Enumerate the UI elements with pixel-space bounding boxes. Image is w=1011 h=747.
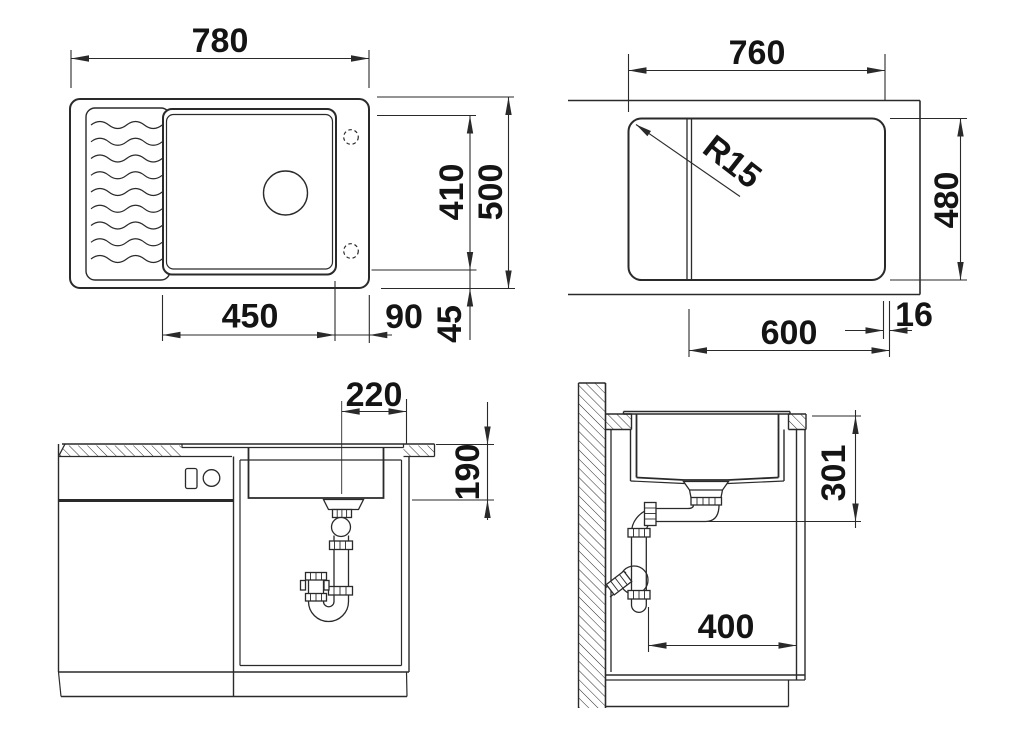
overall-depth-label: 500 xyxy=(472,164,510,221)
cutout-width-label: 760 xyxy=(729,34,786,72)
trap-bend-inner xyxy=(324,602,335,607)
bowl-offset-dimension: 600 xyxy=(689,301,890,357)
arrowhead xyxy=(649,642,667,648)
plinth-left xyxy=(59,672,62,697)
outlet-pipe-top xyxy=(656,505,694,509)
arrowhead xyxy=(629,67,647,74)
bowl-offset-label: 600 xyxy=(761,314,818,352)
cutout-depth-dimension: 480 xyxy=(890,119,967,281)
arrowhead xyxy=(484,427,490,445)
wall-hatch xyxy=(579,383,606,708)
arrowhead xyxy=(689,347,707,353)
sink-dimension-drawing: 780 500 410 45 xyxy=(0,0,1011,747)
arrowhead xyxy=(872,347,890,353)
drain-elbow xyxy=(332,518,351,537)
arrowhead xyxy=(71,55,89,62)
arrowhead xyxy=(484,500,490,518)
drain-offset-dimension: 220 xyxy=(342,376,407,444)
arrowhead xyxy=(957,119,963,137)
arrowhead xyxy=(636,125,651,137)
bowl-outer-edge xyxy=(163,109,336,275)
edge-margin-label: 45 xyxy=(431,305,469,343)
worktop-hatch-right xyxy=(789,414,807,430)
cutout-top-view: R15 760 480 600 xyxy=(568,34,967,357)
arrowhead xyxy=(957,262,963,280)
bowl-depth-label: 410 xyxy=(433,164,471,221)
outlet-pipe-bottom xyxy=(656,505,719,522)
trap-outlet-lug xyxy=(324,581,329,591)
bowl-bottom-inner xyxy=(637,478,779,481)
trap-outlet-lug xyxy=(301,581,306,591)
sink-top-view: 780 500 410 45 xyxy=(70,22,515,343)
drain-plumbing-side xyxy=(606,482,729,613)
appliance-display xyxy=(186,469,198,489)
arrowhead xyxy=(467,252,473,270)
arrowhead xyxy=(867,67,885,74)
bowl-right-offset-label: 90 xyxy=(385,298,423,336)
arrowhead xyxy=(852,504,858,522)
worktop-hatch-right xyxy=(404,446,435,457)
appliance-knob xyxy=(203,470,220,487)
drain-depth-label: 301 xyxy=(815,445,853,502)
trap-bend-outer xyxy=(309,602,349,622)
edge-gap-label: 16 xyxy=(895,296,933,334)
overall-width-dimension: 780 xyxy=(71,22,369,88)
front-section-view: 220 190 xyxy=(59,376,495,697)
tap-hole-bottom xyxy=(344,244,359,259)
pipe-nut xyxy=(330,541,353,550)
worktop-hatch-left xyxy=(59,446,182,457)
drainboard-outline xyxy=(86,108,170,280)
arrowhead xyxy=(317,332,335,338)
bowl-section xyxy=(249,448,384,499)
arrowhead xyxy=(505,97,511,115)
cutout-outline xyxy=(629,119,886,281)
drain-plumbing-front xyxy=(301,401,364,622)
arrowhead xyxy=(852,416,858,434)
overall-width-label: 780 xyxy=(192,22,249,60)
bowl-width-label: 450 xyxy=(222,298,279,336)
cabinet-clearance-dimension: 400 xyxy=(649,607,797,652)
arrowhead xyxy=(779,642,797,648)
drainboard-waves xyxy=(91,122,162,263)
trap-bottom-bend xyxy=(632,605,647,612)
bowl-height-label: 190 xyxy=(449,444,487,501)
arrowhead xyxy=(163,332,181,338)
drain-offset-label: 220 xyxy=(346,376,403,414)
pipe-nut xyxy=(645,503,657,526)
plinth-right xyxy=(407,672,408,697)
drain-flange xyxy=(684,482,729,491)
arrowhead xyxy=(505,271,511,289)
arrowhead xyxy=(351,55,369,62)
arrowhead xyxy=(467,116,473,134)
technical-drawing-page: 780 500 410 45 xyxy=(0,0,1011,747)
cabinet-clearance-label: 400 xyxy=(698,608,755,646)
arrowhead xyxy=(467,289,473,307)
cutout-depth-label: 480 xyxy=(928,172,966,229)
strainer-ring xyxy=(691,498,722,506)
corner-radius-callout: R15 xyxy=(636,125,768,197)
worktop-hatch-left xyxy=(606,414,632,430)
bowl-width-dimension: 450 90 xyxy=(163,281,423,343)
tap-hole-top xyxy=(344,130,359,145)
side-section-view: 301 400 xyxy=(579,383,862,708)
pipe-nut xyxy=(329,587,353,596)
drain-flange xyxy=(324,500,364,510)
bowl-height-dimension: 190 xyxy=(412,402,494,520)
corner-radius-label: R15 xyxy=(696,128,769,196)
arrowhead xyxy=(866,327,884,333)
edge-margin-dimension: 45 xyxy=(431,289,473,343)
